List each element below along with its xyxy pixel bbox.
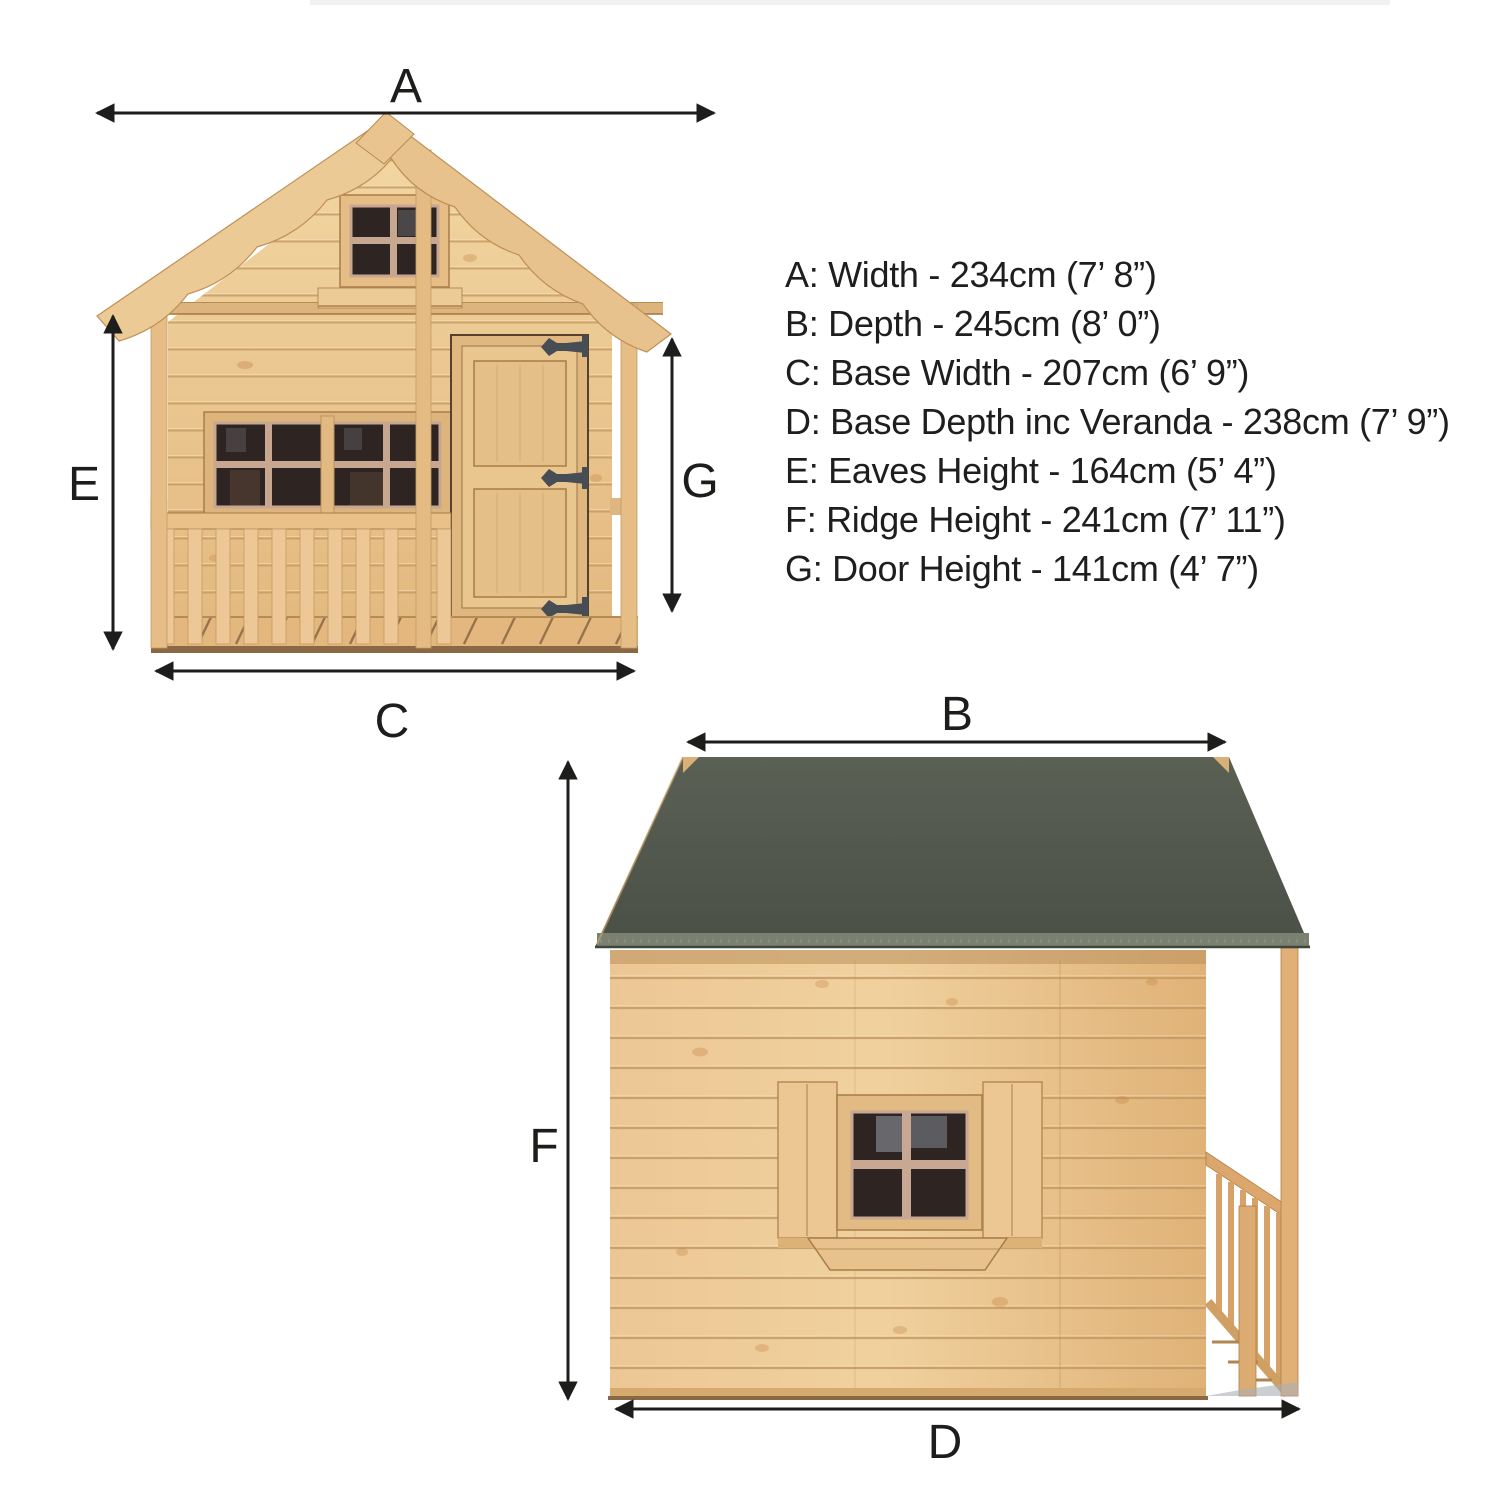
dimension-label-base-width: C — [375, 695, 410, 748]
spec-line-e: E: Eaves Height - 164cm (5’ 4”) — [785, 446, 1450, 495]
dimension-arrow-depth: B — [688, 688, 1225, 742]
center-post — [416, 150, 431, 648]
dimension-label-base-depth: D — [928, 1416, 963, 1469]
upper-window-sill — [318, 288, 462, 308]
spec-line-b: B: Depth - 245cm (8’ 0”) — [785, 299, 1450, 348]
side-veranda — [1206, 948, 1298, 1396]
spec-line-c: C: Base Width - 207cm (6’ 9”) — [785, 348, 1450, 397]
spec-line-a: A: Width - 234cm (7’ 8”) — [785, 250, 1450, 299]
side-base-line — [608, 1396, 1208, 1400]
spec-line-f: F: Ridge Height - 241cm (7’ 11”) — [785, 495, 1450, 544]
side-roof — [595, 757, 1310, 947]
dimension-arrow-base-depth: D — [616, 1409, 1299, 1469]
dimension-label-door-height: G — [681, 455, 718, 508]
lower-window — [204, 412, 451, 518]
dimension-arrow-door-height: G — [672, 339, 719, 611]
dimension-label-width: A — [390, 60, 422, 113]
side-view: B F D — [529, 688, 1310, 1469]
product-dimension-diagram: A E G C — [0, 0, 1500, 1500]
dimension-label-eaves-height: E — [68, 458, 100, 511]
veranda-corner-post — [1281, 948, 1298, 1396]
dimension-arrow-base-width: C — [156, 671, 634, 748]
dimension-label-depth: B — [941, 688, 973, 741]
veranda-post-left — [151, 305, 167, 648]
window-box — [808, 1238, 1007, 1270]
upper-window — [340, 195, 449, 287]
spec-line-g: G: Door Height - 141cm (4’ 7”) — [785, 544, 1450, 593]
front-view: A E G C — [68, 60, 719, 748]
diagram-canvas: A E G C — [0, 0, 1500, 1500]
dimension-arrow-ridge-height: F — [529, 762, 568, 1399]
spec-line-d: D: Base Depth inc Veranda - 238cm (7’ 9”… — [785, 397, 1450, 446]
corner-post-right — [621, 304, 637, 648]
dimension-arrow-eaves-height: E — [68, 316, 113, 649]
door — [451, 335, 588, 619]
veranda-mid-post — [1239, 1206, 1256, 1396]
dimension-arrow-width: A — [97, 60, 714, 113]
dimension-spec-list: A: Width - 234cm (7’ 8”) B: Depth - 245c… — [785, 250, 1450, 593]
side-window — [778, 1082, 1042, 1270]
dimension-label-ridge-height: F — [529, 1120, 558, 1173]
